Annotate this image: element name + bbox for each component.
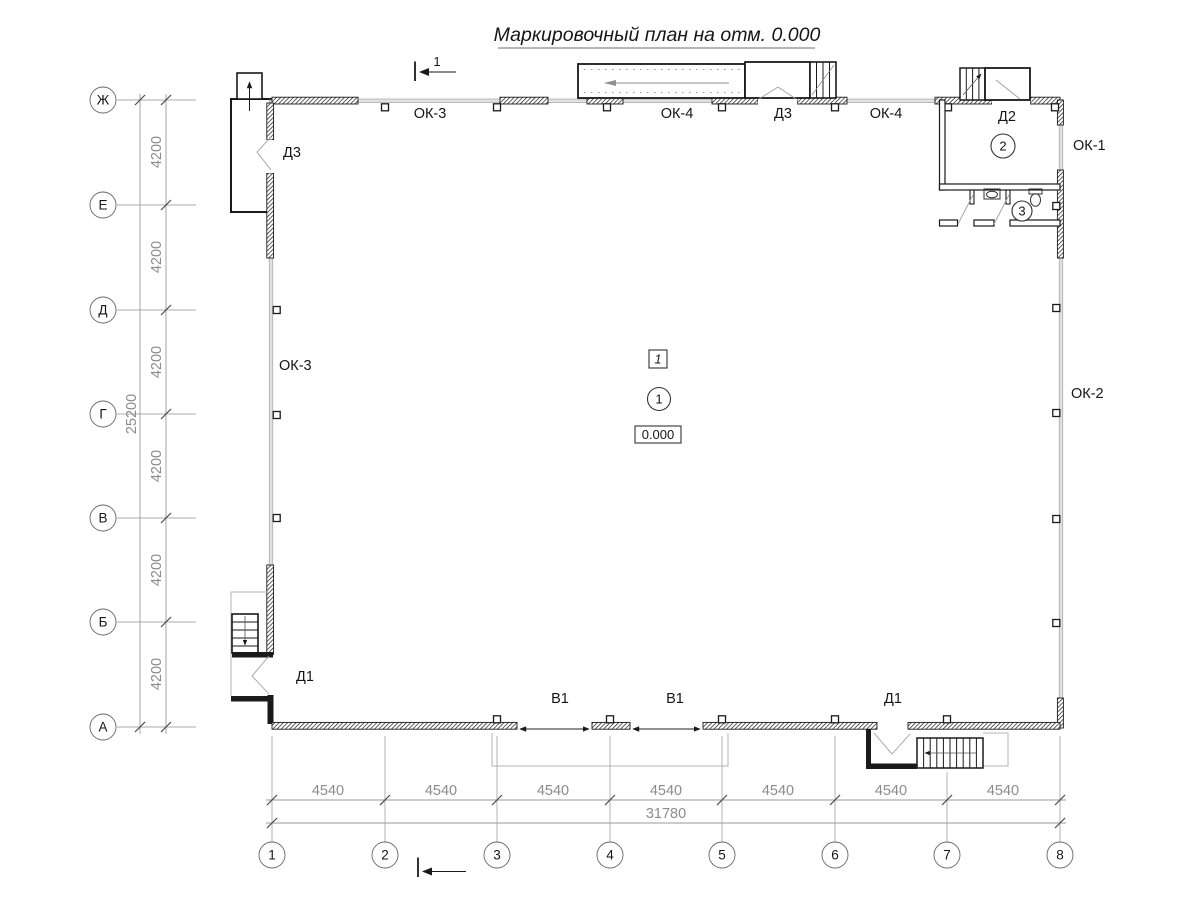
page-title: Маркировочный план на отм. 0.000 — [494, 24, 821, 46]
wc-door-swing — [958, 195, 973, 224]
room-1-number: 1 — [655, 392, 662, 407]
toilet-icon — [1029, 189, 1042, 206]
stair-bottom-right — [917, 738, 983, 768]
room-3-number: 3 — [1018, 204, 1025, 219]
axis-col-label: 8 — [1056, 848, 1064, 863]
door-label: Д2 — [998, 109, 1016, 125]
ramp-top — [578, 62, 836, 99]
window-label: ОК-3 — [279, 358, 312, 374]
gate-label: В1 — [666, 691, 684, 707]
dim-rows-total: 25200 — [124, 394, 140, 434]
stair-top-middle — [810, 62, 836, 98]
elevation-value: 0.000 — [642, 427, 675, 442]
section-number: 1 — [433, 54, 440, 69]
axis-col-label: 5 — [718, 848, 726, 863]
gate-label: В1 — [551, 691, 569, 707]
stair-top-right — [960, 68, 985, 100]
perimeter-walls — [257, 96, 1063, 729]
door-label: Д3 — [774, 106, 792, 122]
door-label: Д1 — [884, 691, 902, 707]
axis-col-label: 4 — [606, 848, 614, 863]
dim-col-spacing: 4540 — [650, 783, 682, 799]
bottom-wall-bands — [272, 722, 1060, 729]
dim-col-spacing: 4540 — [987, 783, 1019, 799]
dim-row-spacing: 4200 — [149, 450, 165, 482]
window-label: ОК-3 — [414, 106, 447, 122]
axis-col-label: 3 — [493, 848, 501, 863]
door-d1-right-swing — [874, 733, 910, 754]
dim-row-spacing: 4200 — [149, 136, 165, 168]
floor-plan-drawing: Маркировочный план на отм. 0.000 1 — [0, 0, 1200, 900]
axis-row-label: Ж — [97, 93, 110, 108]
door-label: Д1 — [296, 669, 314, 685]
dim-cols-total: 31780 — [646, 806, 686, 822]
element-labels: ОК-3 ОК-4 Д3 ОК-4 Д2 ОК-1 ОК-2 ОК-3 Д3 Д… — [279, 106, 1106, 707]
dim-col-spacing: 4540 — [875, 783, 907, 799]
axes-left: 4200 4200 4200 4200 4200 4200 25200 Ж Е … — [90, 87, 196, 740]
room-1-markers: 1 1 0.000 — [635, 350, 681, 443]
landing-top-right — [985, 68, 1030, 100]
dim-col-spacing: 4540 — [762, 783, 794, 799]
dim-row-spacing: 4200 — [149, 554, 165, 586]
stair-bottom-left — [232, 614, 258, 653]
dim-row-spacing: 4200 — [149, 658, 165, 690]
axis-col-label: 1 — [268, 848, 276, 863]
door-label: Д3 — [283, 145, 301, 161]
axis-row-label: Д — [98, 303, 107, 318]
landing-top — [745, 62, 810, 98]
zone-number: 1 — [655, 353, 662, 367]
entrance-top-right — [960, 68, 1030, 100]
floor-plan-page: Маркировочный план на отм. 0.000 1 — [0, 0, 1200, 900]
axis-col-label: 7 — [943, 848, 951, 863]
room-2-number: 2 — [999, 139, 1006, 154]
section-mark-bottom — [418, 858, 466, 878]
dim-col-spacing: 4540 — [537, 783, 569, 799]
dim-row-spacing: 4200 — [149, 241, 165, 273]
window-label: ОК-4 — [870, 106, 903, 122]
axis-row-label: Е — [98, 198, 107, 213]
drawing-title: Маркировочный план на отм. 0.000 — [494, 24, 821, 48]
axis-bubbles-left: Ж Е Д Г В Б А — [90, 87, 116, 740]
axis-bubbles-bottom: 1 2 3 4 5 6 7 8 — [259, 842, 1073, 868]
dim-col-spacing: 4540 — [425, 783, 457, 799]
window-label: ОК-1 — [1073, 138, 1106, 154]
dim-col-spacing: 4540 — [312, 783, 344, 799]
axis-col-label: 6 — [831, 848, 839, 863]
axis-row-label: Г — [99, 407, 107, 422]
entrance-bottom-right — [866, 729, 1008, 769]
window-label: ОК-2 — [1071, 386, 1104, 402]
wall-piers — [273, 104, 1060, 723]
axis-row-label: Б — [99, 615, 108, 630]
axis-row-label: В — [98, 511, 107, 526]
axis-col-label: 2 — [381, 848, 389, 863]
axis-row-label: А — [98, 720, 107, 735]
section-mark-top: 1 — [415, 54, 456, 81]
dim-row-spacing: 4200 — [149, 346, 165, 378]
window-label: ОК-4 — [661, 106, 694, 122]
